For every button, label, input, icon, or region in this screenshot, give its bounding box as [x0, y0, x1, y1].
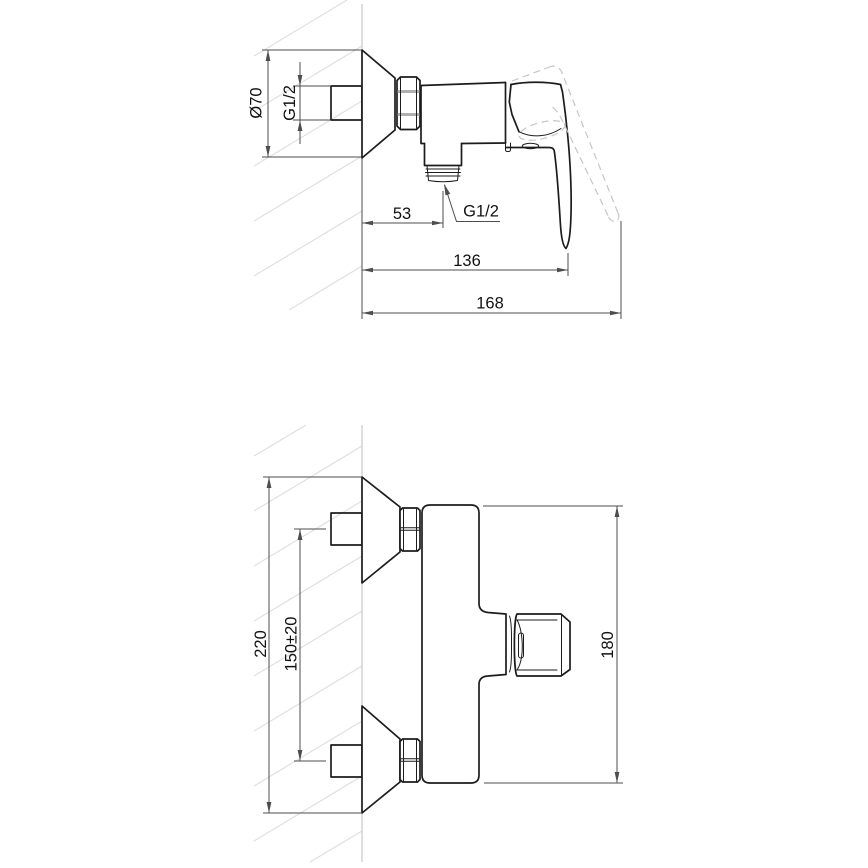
wall-hatching — [254, 0, 362, 310]
technical-drawing-page: Ø70 G1/2 53 G1/2 136 — [0, 0, 868, 868]
dim-label-overall-span: 220 — [252, 630, 270, 658]
wall-hatching-plan — [254, 425, 362, 862]
dim-escutcheon-diameter: Ø70 — [248, 50, 362, 157]
dim-label-inlet-thread: G1/2 — [281, 85, 299, 121]
valve-body-plan — [422, 505, 506, 783]
dim-label-escutcheon-diameter: Ø70 — [248, 87, 266, 118]
escutcheon-lower — [362, 706, 400, 813]
valve-body — [421, 83, 511, 152]
supply-pipe — [331, 86, 362, 120]
outlet-thread-spout — [425, 144, 462, 182]
dim-label-wall-to-outlet: 53 — [393, 205, 411, 223]
dim-label-body-span: 180 — [599, 631, 617, 659]
cartridge-ring — [510, 616, 512, 672]
plan-view: 220 150±20 180 — [252, 425, 623, 862]
supply-pipe-lower — [331, 745, 362, 777]
shower-mixer-dimension-drawing: Ø70 G1/2 53 G1/2 136 — [0, 0, 868, 868]
dim-label-inlet-centres: 150±20 — [283, 617, 301, 672]
dim-label-wall-to-lever-tip: 136 — [453, 252, 481, 270]
mounting-nut-upper — [400, 508, 420, 551]
dim-inlet-centres: 150±20 — [283, 529, 327, 761]
lever-handle — [506, 82, 571, 248]
dim-label-max-depth: 168 — [476, 295, 504, 313]
supply-pipe-upper — [331, 513, 362, 545]
escutcheon-upper — [362, 477, 400, 583]
escutcheon — [362, 50, 395, 158]
side-view: Ø70 G1/2 53 G1/2 136 — [248, 0, 622, 319]
mounting-nut-lower — [400, 739, 420, 782]
dim-wall-to-lever-tip: 136 — [362, 252, 568, 276]
dim-inlet-thread: G1/2 — [281, 62, 330, 144]
mounting-nut — [397, 77, 420, 130]
dim-wall-to-outlet: 53 — [362, 191, 443, 228]
dim-label-outlet-thread: G1/2 — [463, 203, 499, 221]
lever-handle-plan — [514, 614, 570, 676]
leader-outlet-thread: G1/2 — [444, 184, 500, 222]
